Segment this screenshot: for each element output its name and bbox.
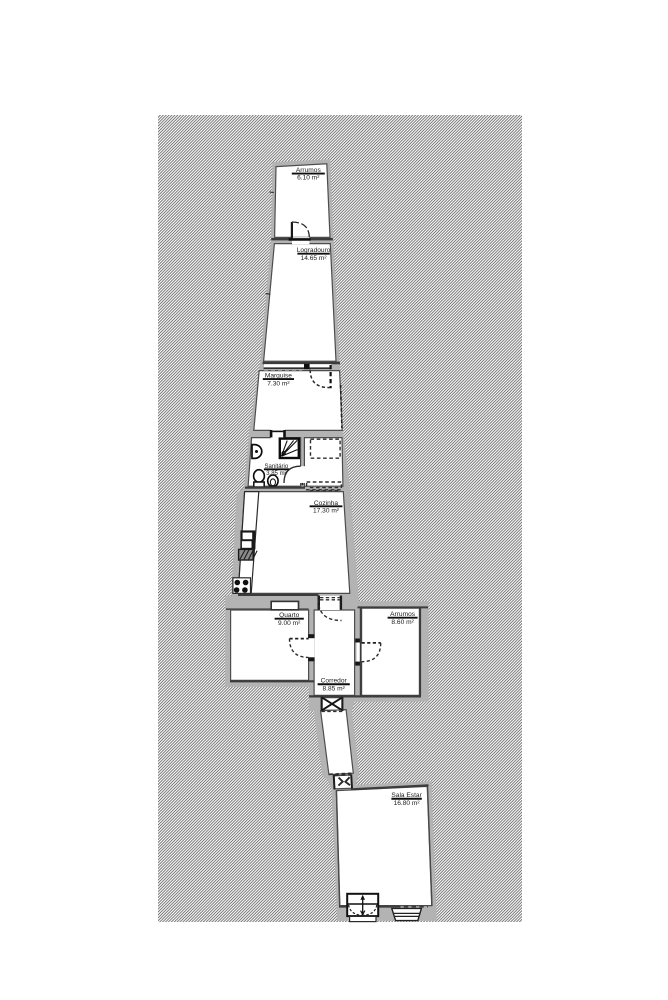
svg-text:6.10 m²: 6.10 m² xyxy=(297,175,320,182)
svg-text:9.00 m²: 9.00 m² xyxy=(278,620,301,627)
svg-text:16.80 m²: 16.80 m² xyxy=(394,800,421,807)
svg-text:7.30 m²: 7.30 m² xyxy=(267,380,290,387)
svg-text:3.85 m²: 3.85 m² xyxy=(266,471,286,477)
svg-text:14.65 m²: 14.65 m² xyxy=(301,255,328,262)
svg-text:8.60 m²: 8.60 m² xyxy=(391,619,414,626)
svg-text:8.85 m²: 8.85 m² xyxy=(323,685,346,692)
svg-text:17.30 m²: 17.30 m² xyxy=(313,507,340,514)
